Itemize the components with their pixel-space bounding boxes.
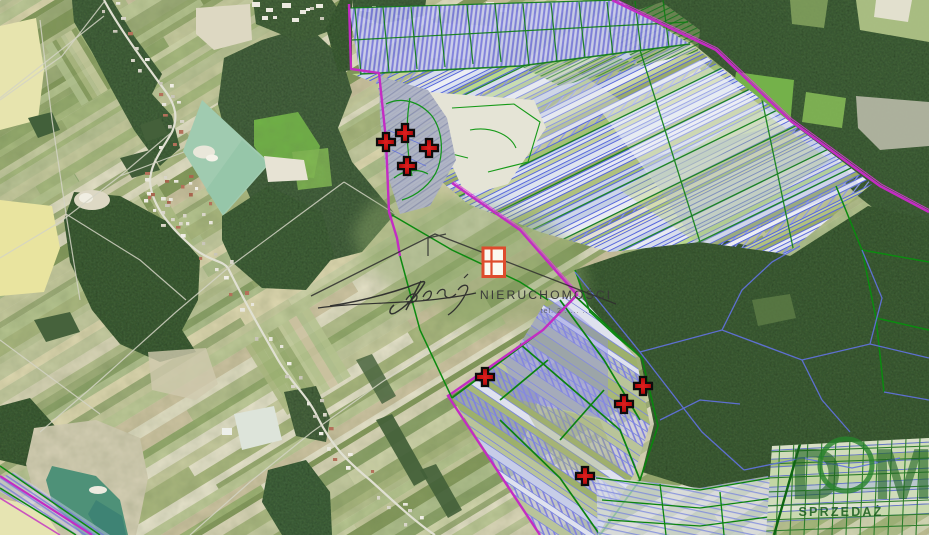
svg-text:tel. 2 . ... ...: tel. 2 . ... ... xyxy=(541,308,592,315)
svg-text:NIERUCHOMOŚCI: NIERUCHOMOŚCI xyxy=(480,287,612,302)
svg-text:SPRZEDAŻ: SPRZEDAŻ xyxy=(799,504,884,519)
svg-text:M: M xyxy=(873,435,929,515)
svg-text:D: D xyxy=(790,435,842,515)
